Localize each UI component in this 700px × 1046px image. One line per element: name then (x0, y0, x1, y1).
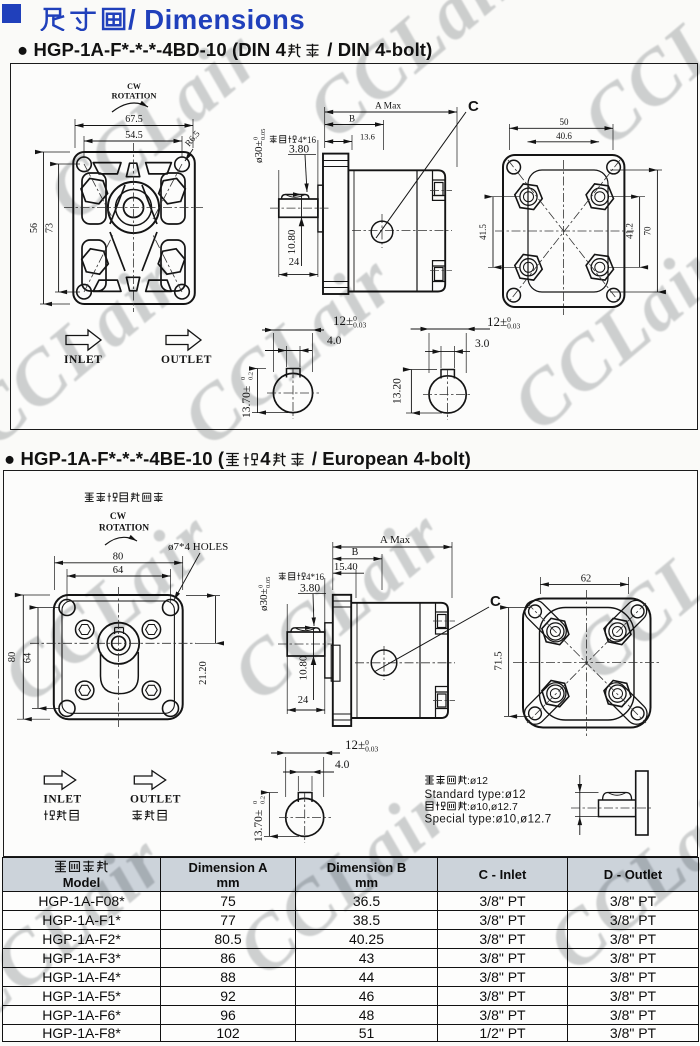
svg-text:INLET: INLET (43, 794, 81, 806)
svg-text:C: C (468, 98, 479, 115)
svg-text:OUTLET: OUTLET (161, 354, 212, 366)
svg-text:Special type:ø10,ø12.7: Special type:ø10,ø12.7 (425, 814, 552, 826)
svg-text:50: 50 (560, 117, 570, 127)
svg-text:0: 0 (258, 585, 265, 588)
svg-text:80: 80 (7, 652, 18, 663)
svg-text:62: 62 (581, 574, 592, 585)
svg-text::ø12: :ø12 (467, 775, 488, 787)
svg-text:0.2: 0.2 (248, 372, 255, 380)
svg-text:0: 0 (252, 801, 259, 804)
svg-text:4*16: 4*16 (306, 572, 325, 582)
svg-text:0: 0 (240, 377, 247, 380)
svg-text:12±: 12± (487, 314, 507, 329)
svg-text:0.03: 0.03 (507, 322, 520, 331)
svg-text:0.05: 0.05 (260, 129, 267, 140)
svg-text::ø10,ø12.7: :ø10,ø12.7 (467, 801, 518, 813)
svg-text:3.0: 3.0 (475, 338, 490, 350)
svg-text:OUTLET: OUTLET (130, 794, 181, 806)
svg-text:24: 24 (298, 695, 309, 706)
svg-text:70: 70 (643, 226, 653, 236)
svg-text:54.5: 54.5 (125, 130, 143, 141)
svg-text:3.80: 3.80 (289, 144, 309, 156)
svg-text:3.80: 3.80 (300, 583, 320, 595)
svg-text:B: B (352, 547, 359, 558)
svg-text:73: 73 (45, 223, 56, 233)
svg-text:64: 64 (113, 565, 124, 576)
svg-text:0.03: 0.03 (365, 745, 378, 754)
svg-text:13.70±: 13.70± (241, 386, 253, 418)
svg-text:56: 56 (29, 223, 40, 233)
svg-text:13.6: 13.6 (360, 132, 375, 142)
svg-text:CW: CW (110, 512, 127, 522)
svg-text:ø30±: ø30± (253, 140, 265, 163)
svg-text:ø30±: ø30± (258, 588, 270, 611)
svg-text:24: 24 (289, 257, 300, 268)
svg-text:R6.5: R6.5 (183, 128, 202, 148)
svg-text:ROTATION: ROTATION (99, 524, 149, 534)
svg-text:12±: 12± (345, 737, 365, 752)
svg-text:ø7*4 HOLES: ø7*4 HOLES (168, 541, 228, 553)
svg-text:67.5: 67.5 (125, 114, 143, 125)
svg-text:41.5: 41.5 (478, 224, 488, 240)
svg-text:4.0: 4.0 (327, 335, 342, 347)
svg-text:64: 64 (23, 652, 34, 663)
svg-text:A Max: A Max (380, 534, 411, 546)
svg-text:0: 0 (253, 137, 260, 140)
svg-text:C: C (490, 593, 501, 610)
svg-text:ROTATION: ROTATION (111, 91, 157, 101)
svg-text:Standard type:ø12: Standard type:ø12 (425, 789, 526, 801)
svg-text:12±: 12± (333, 313, 353, 328)
svg-text:10.80: 10.80 (298, 655, 310, 680)
svg-text:0.05: 0.05 (265, 577, 272, 588)
svg-text:40.6: 40.6 (556, 131, 572, 141)
svg-text:15.40: 15.40 (334, 562, 358, 573)
svg-text:80: 80 (113, 552, 124, 563)
svg-text:0.03: 0.03 (353, 321, 366, 330)
svg-text:A Max: A Max (375, 102, 401, 112)
svg-text:13.20: 13.20 (392, 378, 404, 404)
svg-text:71.5: 71.5 (493, 651, 505, 671)
svg-text:21.20: 21.20 (198, 661, 209, 685)
svg-text:B: B (349, 114, 355, 124)
svg-text:10.80: 10.80 (286, 229, 298, 254)
svg-text:41.2: 41.2 (625, 223, 635, 239)
svg-text:INLET: INLET (64, 354, 102, 366)
svg-text:0.2: 0.2 (260, 796, 267, 804)
svg-text:13.70±: 13.70± (253, 810, 265, 842)
svg-text:4.0: 4.0 (335, 759, 350, 771)
